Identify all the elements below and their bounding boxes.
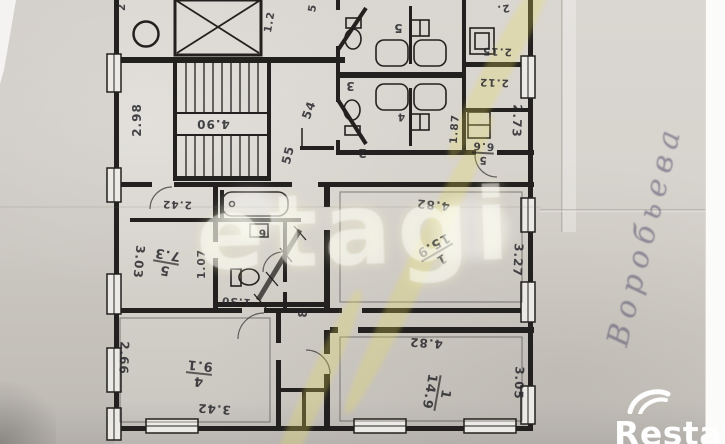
room-label-5: 5 7.3	[151, 245, 182, 278]
room-area: 6.6	[472, 140, 494, 155]
dim-room4-depth: 2.66	[117, 341, 130, 375]
etagi-watermark: etagi	[194, 176, 516, 282]
dim-upper-inner: 1.87	[449, 114, 462, 145]
dim-room5-depth: 3.03	[132, 245, 147, 280]
dim-stair-width: 2.98	[131, 103, 143, 137]
room-label-upper-bath: 5	[393, 22, 402, 34]
bathtub-icon	[376, 84, 408, 110]
room-area: 9.1	[186, 357, 214, 376]
dim-stair-flight: 4.90	[196, 118, 230, 130]
dim-room4-width: 3.42	[197, 402, 231, 416]
room-area: 7.3	[153, 245, 181, 265]
bathtub-icon	[376, 40, 408, 66]
floor-plan-photo: 2 2.98 4.90 55 54 1.2 5 2. 5 3 2 4 2.15 …	[0, 0, 725, 444]
dim-upper-depth: 2.73	[510, 104, 523, 138]
restate-logo-text: Restate	[614, 414, 725, 444]
dim-room2-width: 4.82	[409, 336, 443, 350]
dim-top-cut: 2	[117, 3, 128, 11]
garbage-chute-icon	[134, 22, 159, 47]
room-label-upper-hall: 2	[357, 147, 366, 159]
bathtub-icon	[414, 40, 446, 66]
room-number: 5	[478, 154, 487, 165]
dim-upper-w2: 2.12	[479, 76, 509, 88]
room-number: 1	[438, 388, 453, 400]
room-label-upper-bath-b: 4	[397, 111, 405, 122]
restate-swoosh-icon	[622, 388, 672, 414]
dim-top-cut-b: 5	[307, 3, 319, 13]
room-area: 14.9	[420, 373, 442, 411]
room-number: 5	[159, 263, 171, 278]
dim-upper-w1: 2.15	[482, 45, 512, 57]
paper-crease-vertical-soft	[564, 0, 576, 232]
dim-hall-width: 8	[297, 308, 309, 317]
dim-top-cut-c: 2.	[496, 2, 511, 14]
room-label-kitchen: 5 6.6	[472, 140, 495, 165]
room-number: 4	[192, 374, 203, 388]
room-label-living-2: 1 14.9	[420, 373, 455, 414]
restate-logo: Restate	[612, 388, 725, 444]
room-label-4: 4 9.1	[185, 357, 214, 389]
dim-room2-depth: 3.05	[512, 366, 525, 400]
corner-shadow	[0, 374, 56, 444]
bathtub-icon	[414, 84, 446, 110]
background-strip	[705, 0, 725, 444]
dim-wc-width: 1.30	[221, 295, 252, 308]
room-label-upper-wc: 3	[345, 80, 354, 92]
dim-hall-note: 2.42	[162, 198, 192, 210]
